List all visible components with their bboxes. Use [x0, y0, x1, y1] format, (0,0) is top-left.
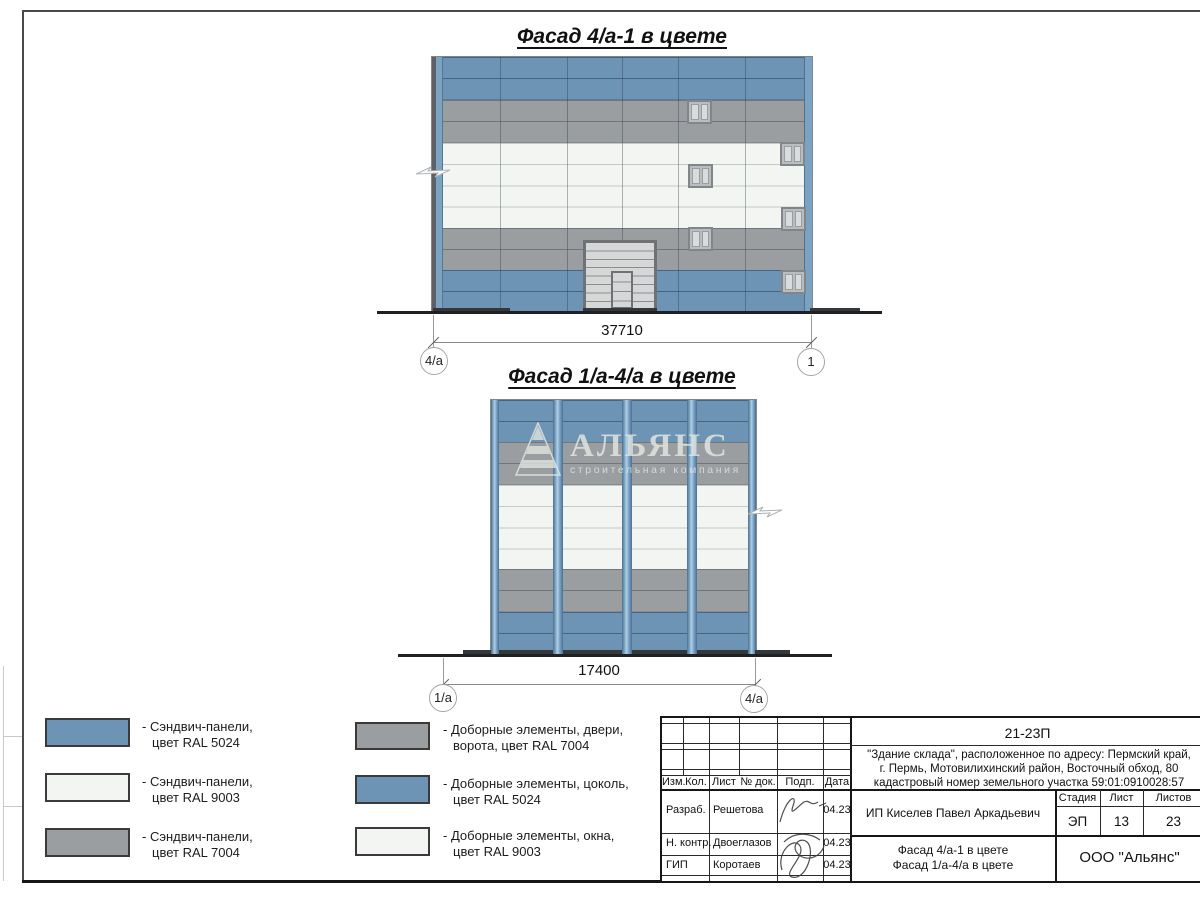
pilaster	[553, 400, 563, 654]
ground-line	[377, 311, 882, 314]
gate-door	[583, 240, 657, 312]
dimension-line	[443, 684, 755, 685]
frame-top	[22, 10, 1200, 12]
panel-joint	[500, 57, 501, 312]
break-mark-icon	[748, 505, 782, 519]
wicket-door	[611, 271, 633, 309]
tb-address: "Здание склада", расположенное по адресу…	[854, 748, 1200, 790]
drawing-sheet: Фасад 4/а-1 в цвете	[0, 0, 1200, 900]
legend-label: - Сэндвич-панели, цвет RAL 9003	[142, 774, 253, 806]
tb-name: Коротаев	[713, 859, 761, 871]
axis-marker-1a: 1/а	[429, 684, 457, 712]
break-mark-icon	[416, 165, 450, 179]
frame-left	[22, 10, 24, 882]
window	[781, 207, 806, 231]
tb-header-izm: Изм.	[662, 776, 683, 788]
panel-joint	[678, 57, 679, 312]
legend-swatch-doors-ral7004	[355, 722, 430, 750]
title-block: Изм. Кол. Лист № док. Подп. Дата Разраб.…	[660, 716, 1200, 883]
legend-swatch-ral5024	[45, 718, 130, 747]
tb-header-podp: Подп.	[777, 776, 823, 788]
tb-sheets-label: Листов	[1143, 792, 1200, 804]
legend-label: - Сэндвич-панели, цвет RAL 5024	[142, 719, 253, 751]
tb-header-kol: Кол.	[683, 776, 709, 788]
facade2-title: Фасад 1/а-4/а в цвете	[432, 365, 812, 389]
legend-swatch-windows-ral9003	[355, 827, 430, 856]
tb-header-list: Лист	[709, 776, 739, 788]
tb-date: 04.23	[823, 804, 851, 816]
legend-label: - Доборные элементы, окна, цвет RAL 9003	[443, 828, 614, 860]
signature	[774, 790, 828, 880]
tb-sheet-value: 13	[1100, 814, 1143, 829]
tb-date: 04.23	[823, 837, 851, 849]
window	[688, 164, 713, 188]
facade1-title: Фасад 4/а-1 в цвете	[432, 25, 812, 49]
pilaster	[622, 400, 632, 654]
legend-label: - Сэндвич-панели, цвет RAL 7004	[142, 829, 253, 861]
margin-line	[3, 666, 4, 881]
tb-stage-value: ЭП	[1055, 814, 1100, 829]
facade1-drawing	[432, 57, 812, 312]
tb-role: Разраб.	[666, 804, 706, 816]
dimension-line	[433, 342, 811, 343]
window	[780, 142, 805, 166]
window	[688, 227, 713, 251]
panel-joint	[745, 57, 746, 312]
pilaster	[491, 400, 499, 654]
facade1-dimension: 37710	[433, 322, 811, 339]
margin-divider	[3, 806, 22, 807]
tb-date: 04.23	[823, 859, 851, 871]
tb-role: Н. контр.	[666, 837, 711, 849]
pilaster	[748, 400, 756, 654]
tb-project-code: 21-23П	[851, 725, 1200, 741]
axis-marker-4a: 4/а	[740, 685, 768, 713]
legend-label: - Доборные элементы, цоколь, цвет RAL 50…	[443, 776, 629, 808]
panel-joint	[567, 57, 568, 312]
tb-sheet-label: Лист	[1100, 792, 1143, 804]
tb-stage-label: Стадия	[1055, 792, 1100, 804]
extension-line	[811, 315, 812, 349]
facade2-dimension: 17400	[443, 662, 755, 679]
legend-swatch-ral7004	[45, 828, 130, 857]
ground-line	[398, 654, 832, 657]
window	[781, 270, 806, 294]
window	[687, 100, 712, 124]
tb-doc-title: Фасад 4/а-1 в цвете Фасад 1/а-4/а в цвет…	[851, 843, 1055, 873]
tb-name: Двоеглазов	[713, 837, 771, 849]
tb-header-data: Дата	[823, 776, 851, 788]
legend-swatch-plinth-ral5024	[355, 775, 430, 804]
tb-role: ГИП	[666, 859, 688, 871]
legend-label: - Доборные элементы, двери, ворота, цвет…	[443, 722, 623, 754]
tb-sheets-value: 23	[1143, 814, 1200, 829]
tb-company: ООО "Альянс"	[1055, 849, 1200, 866]
facade2-drawing: АЛЬЯНС строительная компания	[491, 400, 756, 654]
margin-divider	[3, 736, 22, 737]
legend-swatch-ral9003	[45, 773, 130, 802]
tb-client: ИП Киселев Павел Аркадьевич	[851, 806, 1055, 820]
corner-trim-left-blue	[436, 57, 443, 312]
tb-header-ndok: № док.	[739, 776, 777, 788]
pilaster	[687, 400, 697, 654]
tb-name: Решетова	[713, 804, 763, 816]
